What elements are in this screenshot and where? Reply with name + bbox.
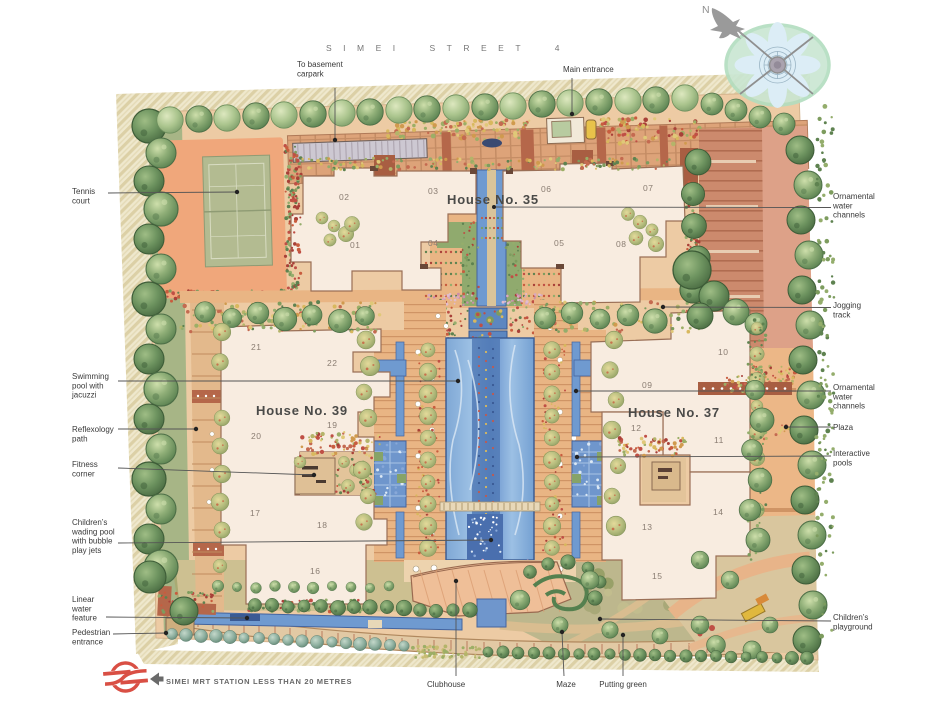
svg-text:To basement: To basement bbox=[297, 60, 344, 69]
svg-text:water: water bbox=[71, 604, 92, 613]
svg-text:pools: pools bbox=[833, 458, 852, 467]
svg-text:Plaza: Plaza bbox=[833, 423, 854, 432]
svg-text:Pedestrian: Pedestrian bbox=[72, 628, 110, 637]
svg-text:01: 01 bbox=[350, 240, 360, 250]
svg-text:pool with: pool with bbox=[72, 381, 104, 390]
svg-text:with bubble: with bubble bbox=[71, 537, 113, 546]
svg-text:16: 16 bbox=[310, 566, 320, 576]
svg-text:Children’s: Children’s bbox=[72, 518, 107, 527]
svg-text:Ornamental: Ornamental bbox=[833, 383, 875, 392]
svg-text:06: 06 bbox=[541, 184, 551, 194]
svg-text:07: 07 bbox=[643, 183, 653, 193]
svg-text:Reflexology: Reflexology bbox=[72, 425, 114, 434]
svg-text:Tennis: Tennis bbox=[72, 187, 95, 196]
svg-text:14: 14 bbox=[713, 507, 723, 517]
svg-text:18: 18 bbox=[317, 520, 327, 530]
svg-text:path: path bbox=[72, 434, 88, 443]
svg-text:13: 13 bbox=[642, 522, 652, 532]
svg-text:track: track bbox=[833, 310, 851, 319]
svg-text:play jets: play jets bbox=[72, 546, 101, 555]
svg-text:SIMEI MRT STATION LESS THAN 20: SIMEI MRT STATION LESS THAN 20 METRES bbox=[166, 677, 352, 686]
svg-text:Ornamental: Ornamental bbox=[833, 192, 875, 201]
svg-text:09: 09 bbox=[642, 380, 652, 390]
svg-text:Swimming: Swimming bbox=[72, 372, 109, 381]
svg-text:17: 17 bbox=[250, 508, 260, 518]
svg-text:Jogging: Jogging bbox=[833, 301, 861, 310]
svg-text:10: 10 bbox=[718, 347, 728, 357]
svg-text:House No. 39: House No. 39 bbox=[256, 403, 348, 418]
svg-text:20: 20 bbox=[251, 431, 261, 441]
svg-text:playground: playground bbox=[833, 622, 873, 631]
svg-text:water: water bbox=[832, 392, 853, 401]
svg-text:11: 11 bbox=[714, 435, 724, 445]
svg-text:N: N bbox=[702, 4, 710, 16]
svg-text:19: 19 bbox=[327, 420, 337, 430]
svg-text:08: 08 bbox=[616, 239, 626, 249]
svg-text:12: 12 bbox=[631, 423, 641, 433]
svg-text:Clubhouse: Clubhouse bbox=[427, 680, 466, 689]
svg-text:carpark: carpark bbox=[297, 69, 325, 78]
svg-text:channels: channels bbox=[833, 402, 865, 411]
svg-text:water: water bbox=[832, 201, 853, 210]
svg-text:15: 15 bbox=[652, 571, 662, 581]
svg-text:Fitness: Fitness bbox=[72, 460, 98, 469]
svg-text:corner: corner bbox=[72, 469, 95, 478]
svg-text:04: 04 bbox=[428, 238, 438, 248]
svg-text:entrance: entrance bbox=[72, 637, 104, 646]
svg-text:Linear: Linear bbox=[72, 595, 95, 604]
svg-text:21: 21 bbox=[251, 342, 261, 352]
svg-text:Maze: Maze bbox=[556, 680, 576, 689]
svg-text:SIMEI STREET 4: SIMEI STREET 4 bbox=[326, 43, 571, 53]
svg-text:court: court bbox=[72, 196, 91, 205]
svg-text:03: 03 bbox=[428, 186, 438, 196]
svg-text:22: 22 bbox=[327, 358, 337, 368]
svg-text:Children’s: Children’s bbox=[833, 613, 868, 622]
svg-text:channels: channels bbox=[833, 211, 865, 220]
svg-text:jacuzzi: jacuzzi bbox=[71, 391, 97, 400]
svg-text:05: 05 bbox=[554, 238, 564, 248]
svg-text:wading pool: wading pool bbox=[71, 527, 115, 536]
svg-text:Putting green: Putting green bbox=[599, 680, 647, 689]
svg-text:Main entrance: Main entrance bbox=[563, 65, 614, 74]
svg-text:House No. 35: House No. 35 bbox=[447, 192, 539, 207]
svg-text:Interactive: Interactive bbox=[833, 449, 870, 458]
svg-text:feature: feature bbox=[72, 614, 97, 623]
svg-text:02: 02 bbox=[339, 192, 349, 202]
svg-text:House No. 37: House No. 37 bbox=[628, 405, 720, 420]
